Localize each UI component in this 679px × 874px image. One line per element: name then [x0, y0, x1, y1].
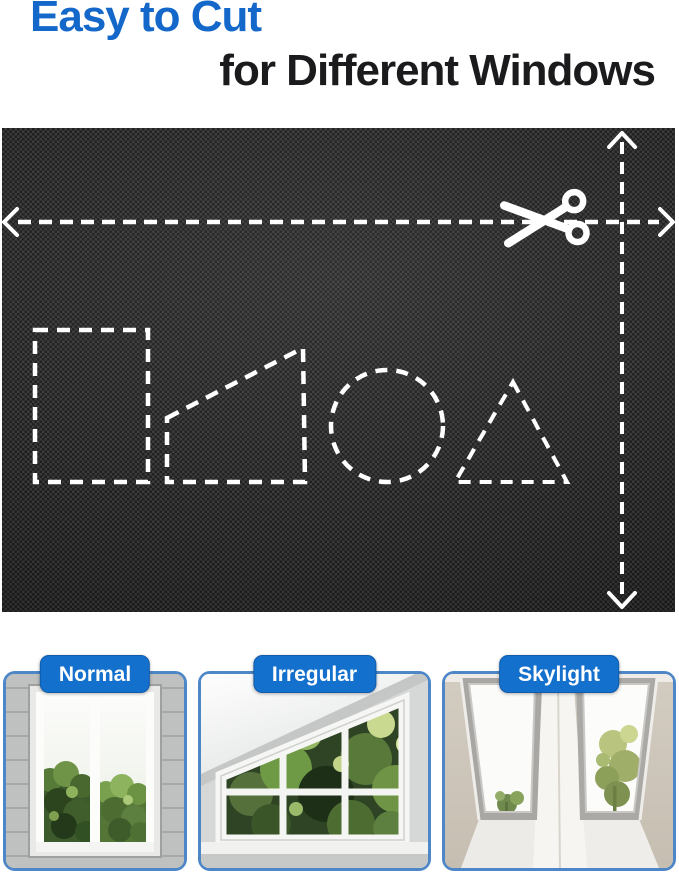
card-normal: Normal	[3, 671, 187, 871]
cut-guide-overlay	[2, 128, 675, 612]
cut-shape-triangle	[455, 382, 567, 482]
right-arrow-icon	[660, 209, 673, 235]
down-arrow-icon	[609, 593, 635, 607]
card-skylight: Skylight	[442, 671, 676, 871]
cut-shape-circle	[331, 370, 443, 482]
card-irregular: Irregular	[198, 671, 431, 871]
label-skylight: Skylight	[499, 655, 619, 693]
cut-shape-rectangle	[35, 330, 148, 482]
page-title-line1: Easy to Cut	[30, 0, 261, 39]
label-normal: Normal	[40, 655, 150, 693]
blackout-fabric-panel	[2, 128, 675, 612]
left-arrow-icon	[4, 209, 17, 235]
cut-shape-trapezoid	[167, 348, 305, 482]
page-title-line2: for Different Windows	[219, 49, 655, 93]
label-irregular: Irregular	[253, 655, 376, 693]
irregular-window-photo	[201, 674, 428, 868]
normal-window-photo	[6, 674, 184, 868]
skylight-window-photo	[445, 674, 673, 868]
